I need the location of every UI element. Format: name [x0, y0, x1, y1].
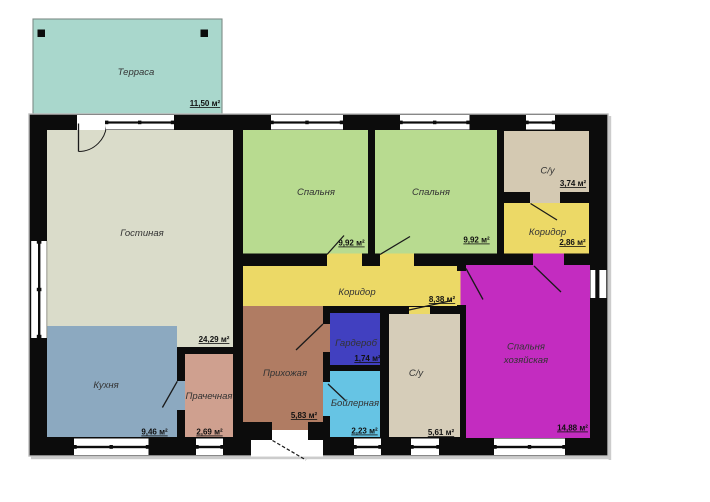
svg-text:хозяйская: хозяйская [503, 355, 548, 366]
svg-text:Гардероб: Гардероб [335, 338, 378, 349]
svg-text:Гостиная: Гостиная [120, 228, 163, 239]
svg-text:Прихожая: Прихожая [263, 368, 307, 379]
svg-text:9,92 м²: 9,92 м² [463, 236, 490, 245]
svg-text:8,38 м²: 8,38 м² [429, 295, 456, 304]
svg-text:Терраса: Терраса [118, 67, 155, 78]
svg-text:24,29 м²: 24,29 м² [199, 335, 230, 344]
svg-text:2,86 м²: 2,86 м² [559, 238, 586, 247]
svg-text:С/у: С/у [540, 166, 556, 177]
svg-text:2,23 м²: 2,23 м² [351, 427, 378, 436]
svg-text:Кухня: Кухня [93, 380, 118, 391]
svg-text:Бойлерная: Бойлерная [331, 398, 379, 409]
svg-text:11,50 м²: 11,50 м² [190, 99, 221, 108]
svg-text:9,46 м²: 9,46 м² [141, 428, 168, 437]
svg-text:1,74 м²: 1,74 м² [354, 354, 381, 363]
svg-text:2,69 м²: 2,69 м² [196, 428, 223, 437]
svg-text:Спальня: Спальня [297, 187, 335, 198]
svg-text:5,83 м²: 5,83 м² [291, 411, 318, 420]
svg-text:3,74 м²: 3,74 м² [560, 179, 587, 188]
svg-text:Прачечная: Прачечная [186, 391, 233, 402]
svg-text:Коридор: Коридор [529, 227, 566, 238]
svg-text:Спальня: Спальня [507, 342, 545, 353]
svg-text:Спальня: Спальня [412, 187, 450, 198]
svg-text:9,92 м²: 9,92 м² [338, 239, 365, 248]
svg-text:Коридор: Коридор [338, 287, 375, 298]
svg-text:С/у: С/у [409, 368, 425, 379]
svg-text:5,61 м²: 5,61 м² [428, 428, 455, 437]
svg-text:14,88 м²: 14,88 м² [557, 424, 588, 433]
